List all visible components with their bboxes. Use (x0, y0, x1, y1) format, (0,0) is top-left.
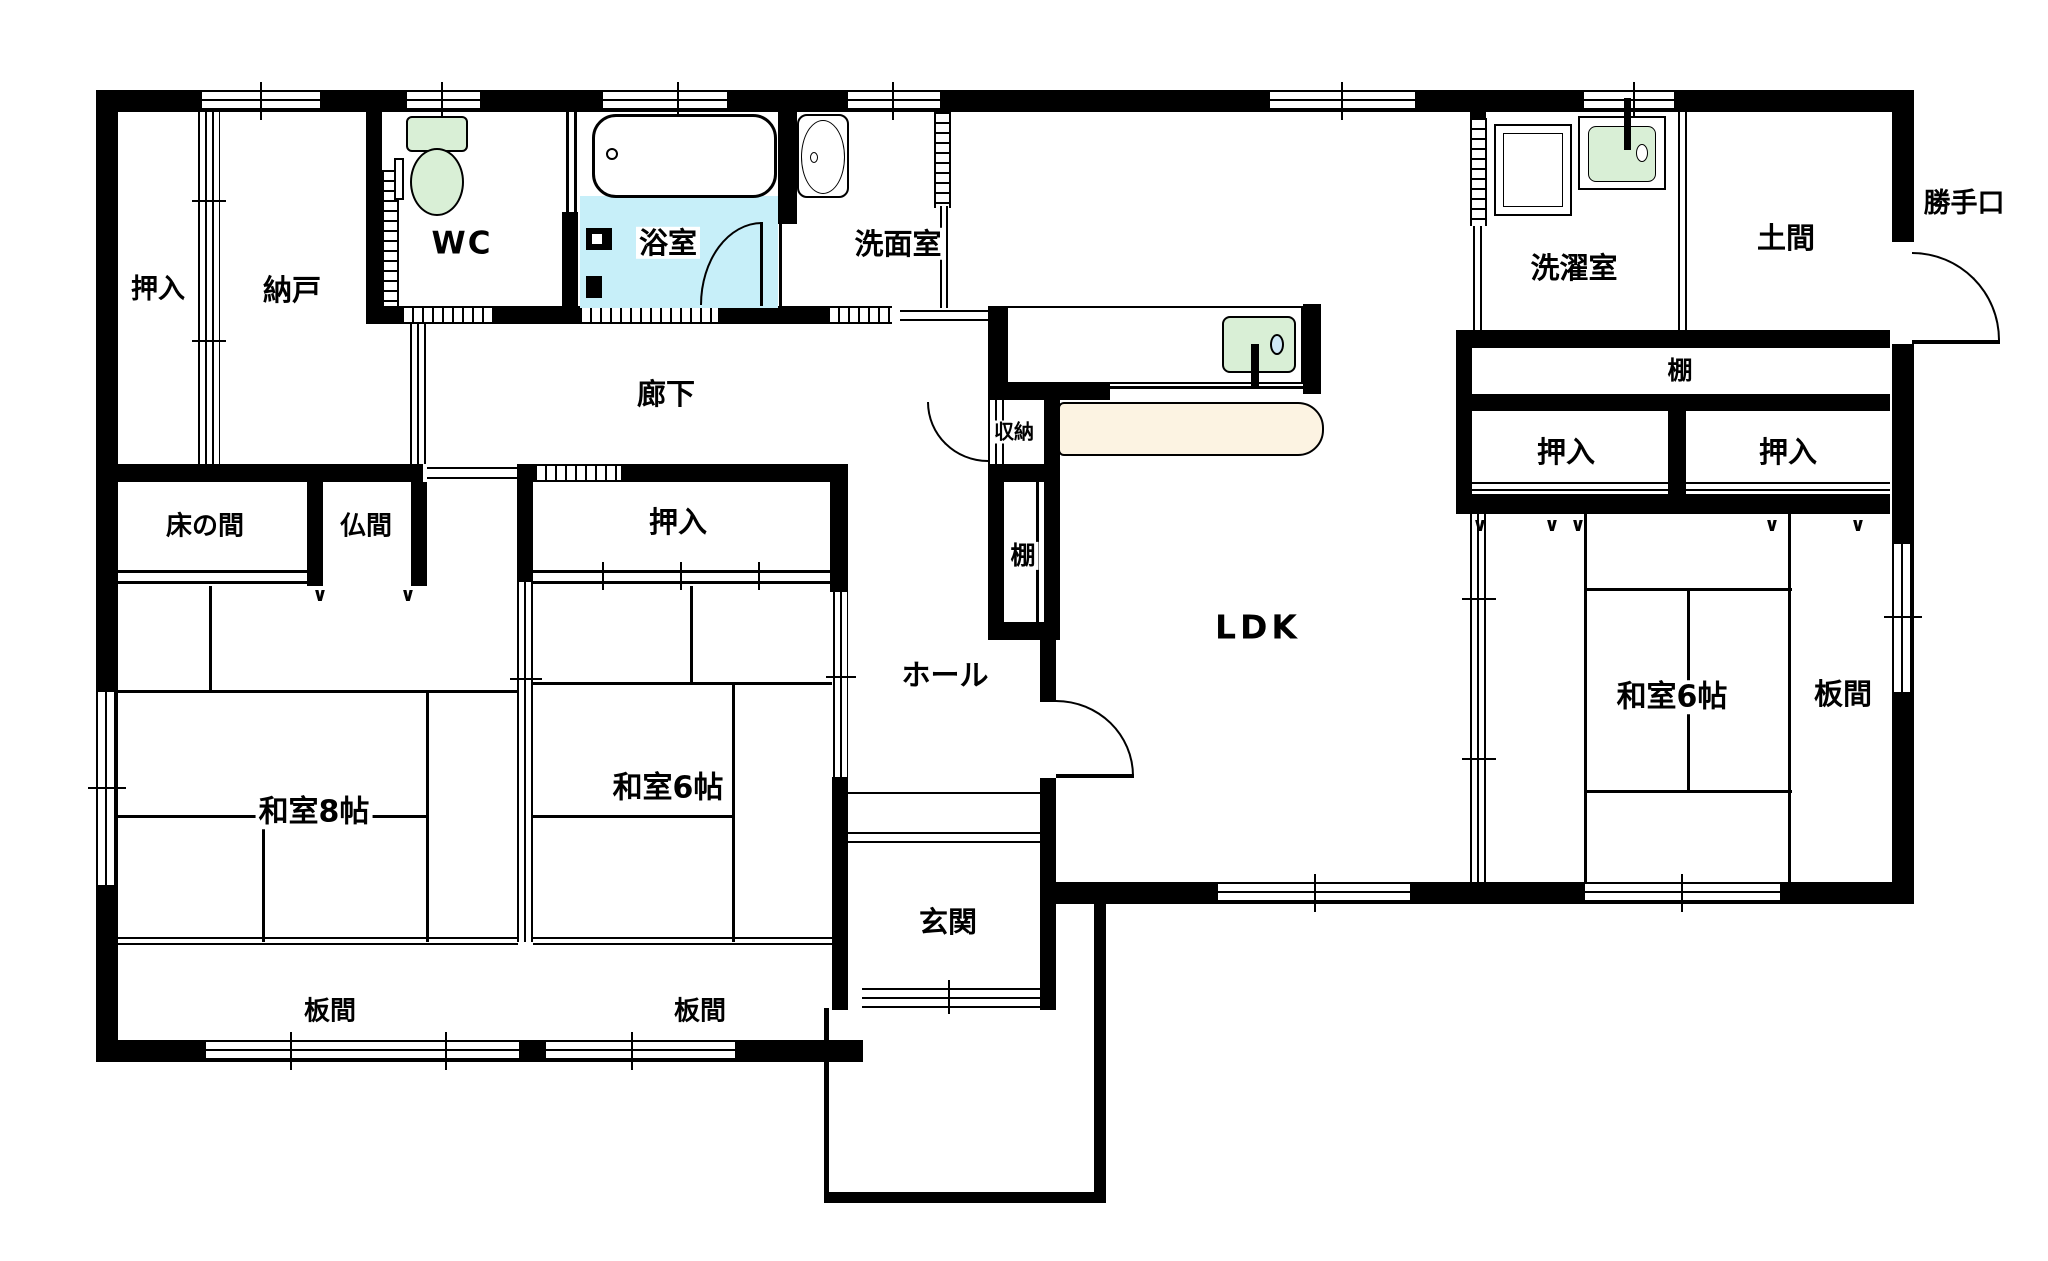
faucet-icon (1624, 98, 1631, 150)
tatami-line (690, 586, 693, 685)
threshold-mark: ∨ (1570, 516, 1585, 535)
wall (988, 622, 1060, 640)
step-line (848, 841, 1040, 843)
room-label-oshiire-left: 押入 (646, 506, 710, 538)
shower-fixture (592, 234, 602, 244)
room-label-shuunou: 収納 (991, 421, 1037, 444)
wall-break-tick (1462, 598, 1496, 600)
window-tick (1681, 874, 1683, 912)
sliding-door-hatch (580, 306, 718, 324)
bathtub-drain (606, 148, 618, 160)
threshold-mark: ∨ (1764, 516, 1779, 535)
room-label-itanoma-left: 板間 (301, 997, 359, 1026)
threshold-mark: ∨ (1544, 516, 1559, 535)
window-tick (445, 1032, 447, 1070)
room-label-yokushitsu: 浴室 (636, 227, 700, 259)
sliding-door (833, 592, 848, 778)
wall (988, 482, 1004, 640)
wall-line (1480, 226, 1482, 330)
wall-bottom-left (735, 1040, 863, 1062)
toilet-icon (406, 116, 468, 152)
wall (1303, 304, 1321, 394)
wall-bottom-left (519, 1040, 546, 1062)
room-label-senmenshitsu: 洗面室 (851, 228, 944, 260)
tatami-line (1584, 514, 1587, 882)
closet-door-line (1472, 482, 1668, 484)
room-label-oshiire-right-2: 押入 (1756, 436, 1820, 468)
door-tick (948, 980, 950, 1014)
wall-break-tick (192, 200, 226, 202)
porch-line (824, 1008, 829, 1198)
wall (366, 112, 382, 308)
window-tick (441, 82, 443, 120)
toilet-icon (410, 148, 464, 216)
wall (366, 306, 402, 324)
sink-drain (1270, 334, 1284, 355)
window (546, 1040, 735, 1062)
door-arc-icon (1056, 700, 1134, 776)
faucet-icon (1251, 344, 1259, 388)
counter-edge (1110, 386, 1303, 389)
room-label-washitsu-8: 和室8帖 (256, 795, 373, 829)
window (848, 90, 940, 112)
room-label-tana-right: 棚 (1664, 357, 1695, 385)
wall-break-tick (1462, 758, 1496, 760)
porch-line (1094, 902, 1106, 1203)
step-line (848, 792, 1040, 794)
wall (1044, 382, 1060, 640)
closet-door-line (1472, 489, 1668, 491)
wall (988, 306, 1006, 400)
washing-machine-icon (1503, 133, 1563, 207)
sliding-door (1470, 514, 1488, 882)
closet-door-line (1686, 489, 1890, 491)
dining-counter-icon (1058, 402, 1324, 456)
room-label-tokonoma: 床の間 (163, 512, 247, 541)
door-tick (680, 562, 682, 590)
tatami-line (533, 815, 735, 818)
wall (621, 464, 832, 482)
room-label-itanoma-center: 板間 (671, 997, 729, 1026)
wall-bottom-left (96, 1040, 206, 1062)
wall-line (1678, 112, 1680, 330)
room-label-tana-middle: 棚 (1007, 542, 1038, 570)
sliding-door (517, 582, 533, 942)
room-label-wc: WC (429, 227, 496, 262)
room-label-rouka: 廊下 (634, 378, 698, 410)
wall-line (574, 112, 577, 214)
door-tick (602, 562, 604, 590)
wall (411, 482, 427, 586)
tatami-line (533, 682, 832, 685)
wall (830, 464, 848, 592)
window-tick (290, 1032, 292, 1070)
room-label-genkan: 玄関 (916, 906, 980, 938)
room-label-itanoma-right: 板間 (1811, 678, 1875, 710)
room-label-ldk: LDK (1212, 610, 1304, 647)
window (206, 1040, 519, 1062)
room-label-oshiire-right-1: 押入 (1534, 436, 1598, 468)
window-tick (892, 82, 894, 120)
shower-fixture (586, 276, 602, 298)
window-tick (1884, 616, 1922, 618)
edge-line (118, 581, 308, 584)
room-label-katteguchi: 勝手口 (1921, 189, 2008, 219)
wall (517, 464, 533, 582)
sink-drain (1636, 144, 1648, 162)
wall (718, 306, 828, 324)
sliding-door (198, 112, 220, 464)
closet-door-line (1686, 482, 1890, 484)
tatami-line (262, 815, 265, 942)
room-label-nando: 納戸 (260, 274, 324, 306)
wall (1456, 330, 1472, 514)
window-tick (1341, 82, 1343, 120)
wall-break-tick (192, 340, 226, 342)
wall-break-tick (510, 678, 542, 680)
window (603, 90, 727, 112)
window-tick (631, 1032, 633, 1070)
door-arc-icon (1912, 252, 2000, 340)
step-line (848, 832, 1040, 834)
threshold-mark: ∨ (1850, 516, 1865, 535)
door-arc-icon (927, 402, 988, 462)
wall-line (779, 222, 782, 308)
wall (832, 777, 848, 1010)
room-label-hall: ホール (898, 659, 991, 691)
threshold-mark: ∨ (400, 586, 415, 605)
entrance-sliding-door (862, 988, 1040, 1008)
wall-bottom-right (1410, 882, 1585, 904)
edge-line (1788, 514, 1791, 882)
louver-window (1470, 118, 1487, 226)
wall (494, 306, 580, 324)
wall-line (1473, 226, 1475, 330)
window (1892, 544, 1914, 692)
room-label-oshiire-top-left: 押入 (128, 275, 188, 305)
opening-line (900, 310, 988, 312)
edge-line (118, 570, 308, 573)
sliding-door (410, 322, 427, 464)
wall (1470, 330, 1890, 348)
wall-bottom-right (1056, 882, 1218, 904)
edge-line (118, 937, 518, 939)
window-tick (88, 787, 126, 789)
opening-line (427, 477, 523, 479)
sliding-door-hatch (828, 306, 892, 324)
threshold-mark: ∨ (1472, 516, 1487, 535)
wall-right-upper (1892, 90, 1914, 242)
opening-line (427, 467, 523, 469)
tatami-line (1584, 790, 1792, 793)
wall (307, 482, 323, 586)
toilet-handle (394, 158, 404, 200)
wall (1456, 494, 1890, 514)
window-tick (260, 82, 262, 120)
wall (562, 212, 578, 308)
room-label-washitsu-6-right: 和室6帖 (1614, 680, 1731, 714)
wall (1040, 640, 1056, 702)
tatami-line (209, 586, 212, 693)
kitchen-sink-icon (1222, 316, 1296, 373)
edge-line (533, 943, 832, 945)
door-leaf (1912, 340, 2000, 344)
basin-drain (810, 152, 818, 163)
edge-line (533, 937, 832, 939)
tatami-line (732, 682, 735, 942)
wall (988, 464, 1044, 482)
wall-bottom-right (1780, 882, 1914, 904)
tatami-line (118, 690, 518, 693)
opening-line (900, 319, 988, 321)
sliding-door-hatch (535, 464, 621, 482)
window-tick (1314, 874, 1316, 912)
wall-line (946, 206, 948, 308)
washbasin-icon (801, 120, 845, 194)
wall-line (566, 112, 569, 214)
bathtub-icon (592, 114, 777, 198)
porch-line (824, 1192, 1106, 1203)
room-label-butsuma: 仏間 (337, 512, 395, 541)
room-label-doma: 土間 (1754, 222, 1818, 254)
threshold-mark: ∨ (312, 586, 327, 605)
wall (1470, 394, 1890, 411)
wall (96, 464, 423, 482)
door-tick (758, 562, 760, 590)
wall-left (96, 90, 118, 1062)
wall (778, 112, 797, 224)
edge-line (118, 943, 518, 945)
wall-line (1685, 112, 1687, 330)
floor-plan: ∨ ∨ ∨ ∨ ∨ ∨ ∨ 押入納戸WC浴室洗面室洗濯室土間勝手口棚押入押入廊下… (0, 0, 2048, 1261)
window (407, 90, 480, 112)
window-tick (1633, 82, 1635, 120)
wall-break-tick (826, 676, 856, 678)
louver-window (934, 112, 951, 208)
room-label-washitsu-6-left: 和室6帖 (610, 771, 727, 805)
room-label-sentakushitsu: 洗濯室 (1527, 252, 1620, 284)
wall (1040, 778, 1056, 1010)
